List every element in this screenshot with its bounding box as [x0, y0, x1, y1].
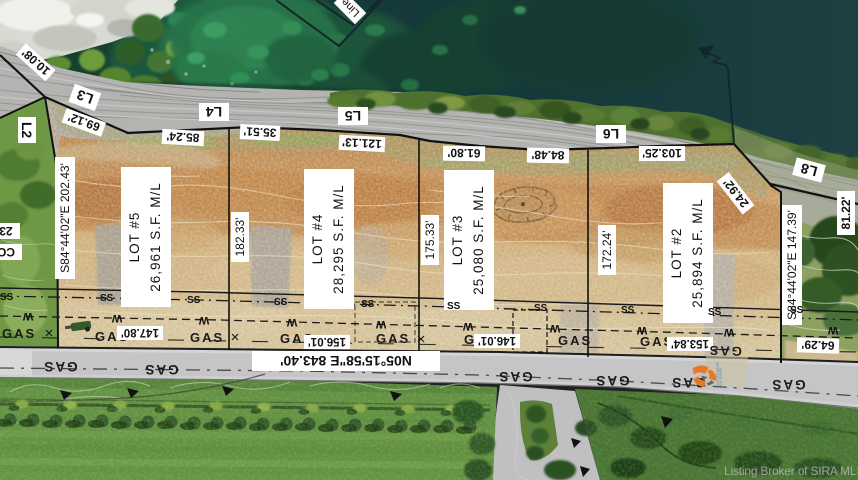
svg-text:156.01': 156.01'	[308, 335, 346, 347]
svg-text:SS: SS	[534, 303, 548, 314]
svg-text:L6: L6	[603, 126, 620, 142]
svg-text:GAS: GAS	[42, 359, 77, 374]
svg-text:81.22': 81.22'	[839, 196, 853, 229]
svg-text:172.24': 172.24'	[600, 231, 614, 270]
svg-text:S84°44'02"E 147.39': S84°44'02"E 147.39'	[785, 210, 799, 320]
svg-text:25,080 S.F. M/L: 25,080 S.F. M/L	[471, 185, 486, 295]
svg-text:SS: SS	[708, 307, 722, 318]
svg-text:GAS: GAS	[770, 377, 805, 392]
svg-text:23: 23	[0, 224, 13, 238]
svg-text:GAS: GAS	[143, 362, 178, 377]
svg-text:182.33': 182.33'	[233, 218, 247, 257]
svg-text:SS: SS	[100, 293, 114, 304]
svg-text:LOT #4: LOT #4	[310, 214, 325, 265]
svg-text:28,295 S.F. M/L: 28,295 S.F. M/L	[331, 184, 346, 294]
svg-text:REAL ESTATE: REAL ESTATE	[718, 367, 722, 388]
svg-text:N05°15'58"E 843.40': N05°15'58"E 843.40'	[280, 353, 412, 369]
svg-text:Listing Broker of SIRA MLS: Listing Broker of SIRA MLS	[724, 464, 858, 478]
svg-text:GAS: GAS	[594, 373, 629, 388]
svg-text:SS: SS	[0, 292, 14, 303]
svg-text:SS: SS	[790, 305, 804, 316]
svg-text:GAS: GAS	[707, 343, 742, 359]
svg-text:LOT #2: LOT #2	[669, 228, 684, 279]
svg-text:S84°44'02"E 202.43': S84°44'02"E 202.43'	[58, 163, 72, 273]
svg-text:147.80': 147.80'	[121, 326, 159, 338]
svg-text:61.80': 61.80'	[447, 146, 480, 161]
svg-text:LOT #3: LOT #3	[450, 215, 465, 266]
svg-text:L2: L2	[19, 122, 35, 139]
svg-text:GAS: GAS	[2, 326, 36, 341]
svg-text:GAS: GAS	[558, 333, 592, 348]
svg-text:W: W	[723, 326, 734, 338]
svg-text:121.13': 121.13'	[342, 135, 382, 151]
svg-text:W: W	[549, 322, 560, 334]
svg-text:W: W	[636, 324, 647, 336]
svg-text:SS: SS	[621, 305, 635, 316]
svg-text:84.48': 84.48'	[531, 148, 564, 163]
svg-text:W: W	[111, 312, 122, 324]
svg-text:146.01': 146.01'	[478, 334, 516, 346]
svg-text:103.25': 103.25'	[642, 146, 682, 160]
svg-text:GAS: GAS	[190, 330, 224, 345]
svg-text:GAS: GAS	[497, 369, 532, 384]
svg-text:GAS: GAS	[376, 331, 410, 346]
svg-text:175.33': 175.33'	[423, 221, 437, 260]
svg-text:CO: CO	[0, 245, 15, 259]
svg-text:W: W	[375, 318, 386, 330]
svg-text:W: W	[198, 314, 209, 326]
svg-text:25,894 S.F. M/L: 25,894 S.F. M/L	[690, 198, 705, 308]
svg-text:SS: SS	[274, 297, 288, 308]
svg-text:W: W	[286, 316, 297, 328]
svg-text:26,961 S.F. M/L: 26,961 S.F. M/L	[148, 182, 163, 292]
svg-text:L5: L5	[345, 108, 362, 124]
svg-text:W: W	[827, 324, 838, 336]
svg-text:153.84': 153.84'	[671, 337, 709, 349]
svg-text:SS: SS	[447, 301, 461, 312]
svg-text:35.51': 35.51'	[243, 124, 277, 140]
svg-text:LOT #5: LOT #5	[127, 212, 142, 263]
svg-text:W: W	[22, 310, 33, 322]
svg-text:SS: SS	[187, 295, 201, 306]
svg-text:64.29': 64.29'	[801, 337, 834, 352]
svg-text:L4: L4	[206, 104, 223, 120]
svg-text:SS: SS	[361, 299, 375, 310]
svg-text:85.24': 85.24'	[166, 129, 200, 145]
svg-text:W: W	[462, 320, 473, 332]
